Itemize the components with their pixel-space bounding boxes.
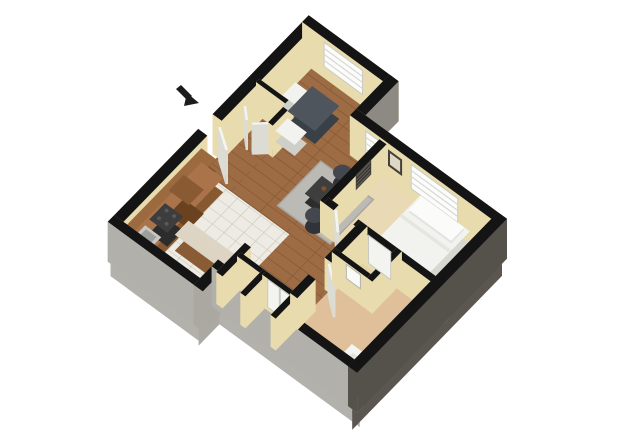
stove-burner-top bbox=[172, 214, 176, 217]
floorplan-image bbox=[0, 0, 640, 432]
stove-burner-top bbox=[165, 222, 169, 225]
utility-closet-wall-s-face bbox=[240, 293, 245, 329]
entry-closet-door-leaf-b-face bbox=[268, 122, 269, 154]
exterior-wall-se-face bbox=[348, 366, 357, 413]
kitchen-south-wall-face bbox=[216, 272, 222, 308]
exterior-wall-sw-step-face bbox=[194, 285, 203, 332]
stove-burner-top bbox=[157, 216, 161, 219]
coffee-table-item-mug-top bbox=[321, 186, 326, 190]
bathroom-door-leaf-face bbox=[333, 285, 336, 317]
floorplan-3d-svg bbox=[0, 0, 640, 432]
hall-closet-wall-s-face bbox=[271, 315, 276, 351]
stove-burner-top bbox=[165, 209, 169, 212]
entry-closet-door-leaf-b-face bbox=[252, 122, 268, 153]
entry-door-leaf-face bbox=[225, 150, 228, 184]
entry-closet-wall-side-face bbox=[256, 79, 259, 114]
